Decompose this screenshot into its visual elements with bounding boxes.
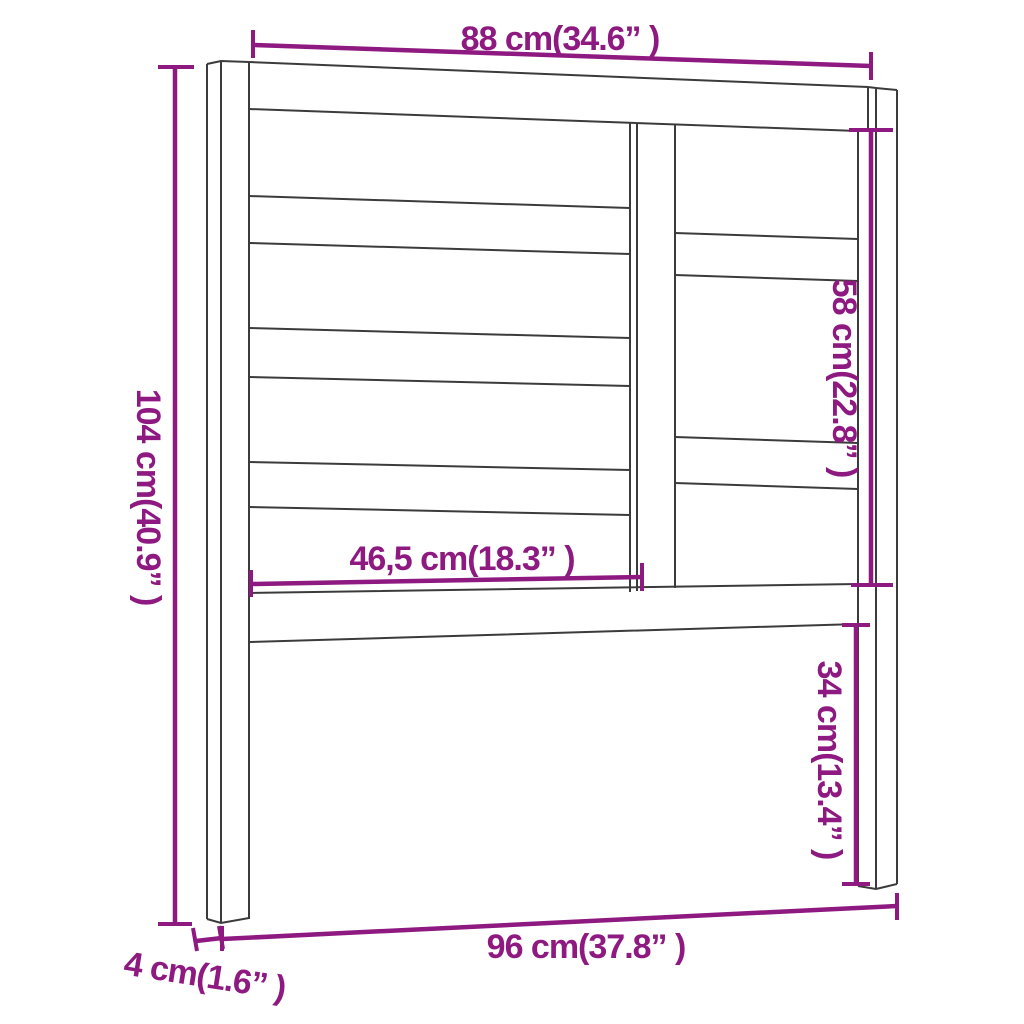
center-divider [630,123,675,592]
label-leg-depth: 4 cm(1.6” ) [121,945,288,1008]
dim-leg-depth [193,926,223,951]
right-post [858,87,897,889]
diagram-svg: 88 cm(34.6” ) 104 cm(40.9” ) 46,5 cm(18.… [0,0,1024,1024]
dimension-lines [158,30,897,951]
headboard-dimension-diagram: 88 cm(34.6” ) 104 cm(40.9” ) 46,5 cm(18.… [0,0,1024,1024]
headboard-outline [207,61,897,923]
label-top-width: 88 cm(34.6” ) [461,20,660,58]
left-post [207,61,249,923]
left-slats [249,196,630,515]
label-right-lower-height: 34 cm(13.4” ) [810,661,848,860]
label-slat-length: 46,5 cm(18.3” ) [349,540,574,578]
dimension-labels: 88 cm(34.6” ) 104 cm(40.9” ) 46,5 cm(18.… [121,20,863,1008]
top-rail [249,62,868,131]
label-bottom-width: 96 cm(37.8” ) [487,928,686,966]
label-right-upper-height: 58 cm(22.8” ) [825,279,863,478]
bottom-rail [249,584,858,642]
label-left-height: 104 cm(40.9” ) [129,389,167,606]
